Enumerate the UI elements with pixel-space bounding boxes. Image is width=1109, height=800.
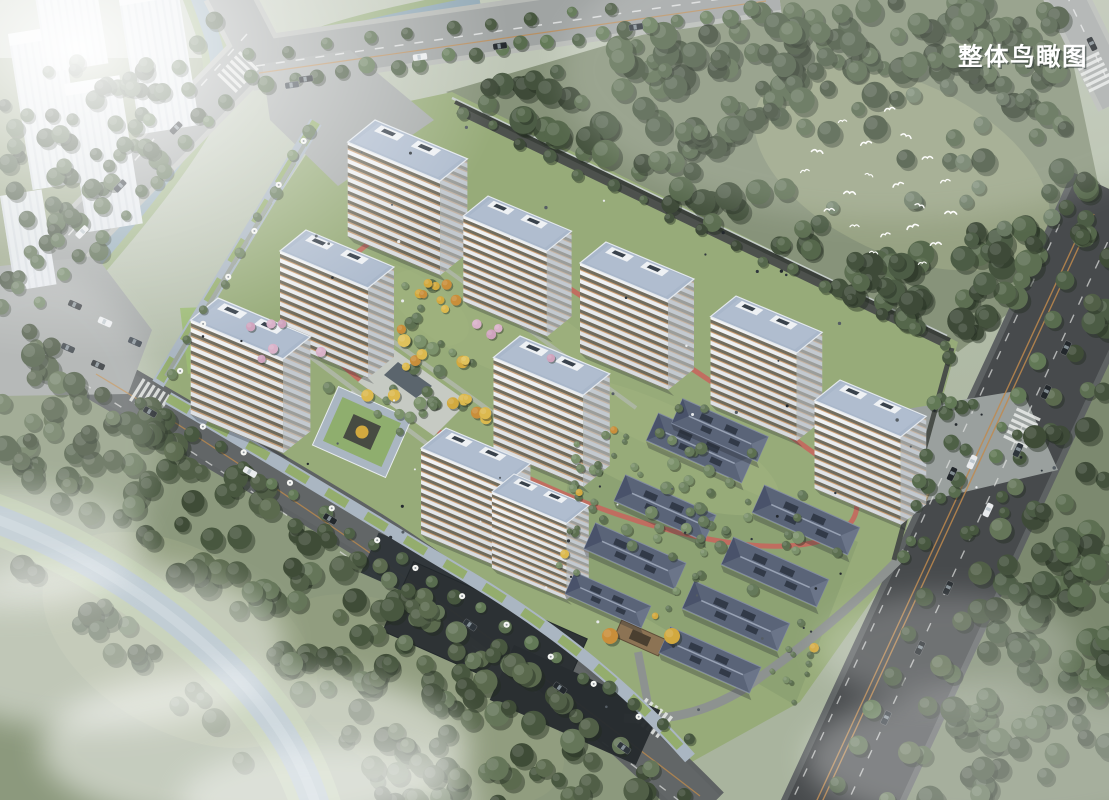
aerial-rendering: 整体鸟瞰图 整体鸟瞰图 (0, 0, 1109, 800)
sun-glare (0, 0, 1109, 800)
view-title-label: 整体鸟瞰图 (958, 42, 1088, 71)
scene-svg: 整体鸟瞰图 整体鸟瞰图 (0, 0, 1109, 800)
